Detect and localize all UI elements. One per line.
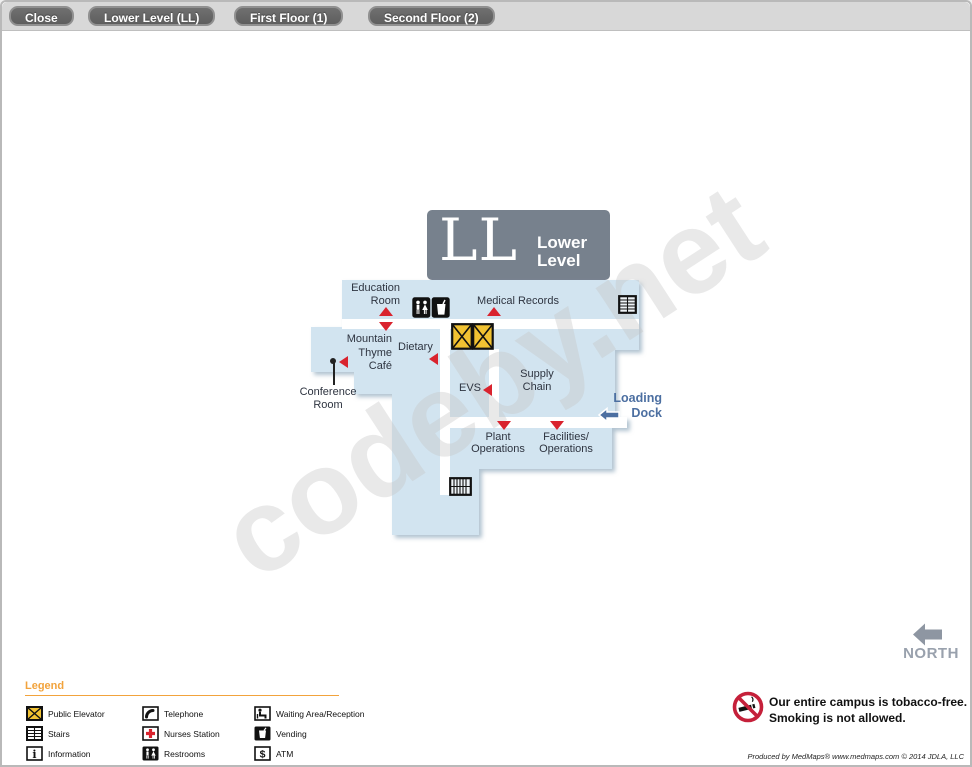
floor-title-block: LL Lower Level xyxy=(427,210,610,280)
marker-mountain-thyme-cafe xyxy=(379,322,393,331)
atm-icon: $ xyxy=(254,746,271,761)
room-label-facilities-operations: Facilities/ Operations xyxy=(528,431,604,455)
stairs-icon xyxy=(26,726,43,741)
legend-rule xyxy=(25,695,339,696)
nurses-station-icon xyxy=(142,726,159,741)
floor-map-viewer: Close Lower Level (LL) First Floor (1) S… xyxy=(0,0,972,767)
floor-abbreviation: LL xyxy=(439,206,518,274)
conference-room-pin-line xyxy=(333,363,335,385)
floor-title-line2: Level xyxy=(537,252,580,270)
tab-first-floor[interactable]: First Floor (1) xyxy=(234,6,343,26)
marker-conference-room xyxy=(339,356,348,368)
marker-facilities-operations xyxy=(550,421,564,430)
svg-text:$: $ xyxy=(260,749,266,761)
close-button[interactable]: Close xyxy=(9,6,74,26)
conference-room-pin-dot xyxy=(330,358,336,364)
tab-second-floor[interactable]: Second Floor (2) xyxy=(368,6,495,26)
room-label-mountain-thyme-cafe: Mountain Thyme Café xyxy=(325,333,392,374)
room-label-medical-records: Medical Records xyxy=(457,295,579,308)
room-label-plant-operations: Plant Operations xyxy=(468,431,528,455)
stairs-map-icon-east xyxy=(618,295,637,314)
no-smoking-icon xyxy=(731,690,765,724)
watermark: codeby.net xyxy=(106,35,877,730)
toolbar: Close Lower Level (LL) First Floor (1) S… xyxy=(2,2,970,31)
room-label-education-room: Education Room xyxy=(330,282,400,308)
tobacco-free-notice: Our entire campus is tobacco-free. Smoki… xyxy=(769,694,969,726)
marker-medical-records xyxy=(487,307,501,316)
marker-dietary xyxy=(429,353,438,365)
marker-evs xyxy=(483,384,492,396)
public-elevator-icon xyxy=(26,706,43,721)
marker-plant-operations xyxy=(497,421,511,430)
room-label-dietary: Dietary xyxy=(398,341,433,354)
information-icon: i xyxy=(26,746,43,761)
svg-text:i: i xyxy=(32,748,36,761)
loading-dock-arrow-icon xyxy=(598,407,620,423)
room-label-evs: EVS xyxy=(459,382,481,395)
restrooms-icon xyxy=(142,746,159,761)
marker-education-room xyxy=(379,307,393,316)
room-label-supply-chain: Supply Chain xyxy=(512,368,562,394)
tab-lower-level[interactable]: Lower Level (LL) xyxy=(88,6,215,26)
north-arrow-icon xyxy=(913,623,943,646)
producer-credit: Produced by MedMaps® www.medmaps.com © 2… xyxy=(702,752,964,761)
floor-title-line1: Lower xyxy=(537,234,587,252)
legend-title: Legend xyxy=(25,680,64,692)
room-label-conference-room: Conference Room xyxy=(293,386,363,412)
restrooms-vending-icon xyxy=(412,297,450,318)
north-label: NORTH xyxy=(902,645,960,662)
vending-icon xyxy=(254,726,271,741)
waiting-area-icon xyxy=(254,706,271,721)
stairs-map-icon-south xyxy=(449,477,472,496)
public-elevator-map-icon xyxy=(451,323,494,350)
telephone-icon xyxy=(142,706,159,721)
